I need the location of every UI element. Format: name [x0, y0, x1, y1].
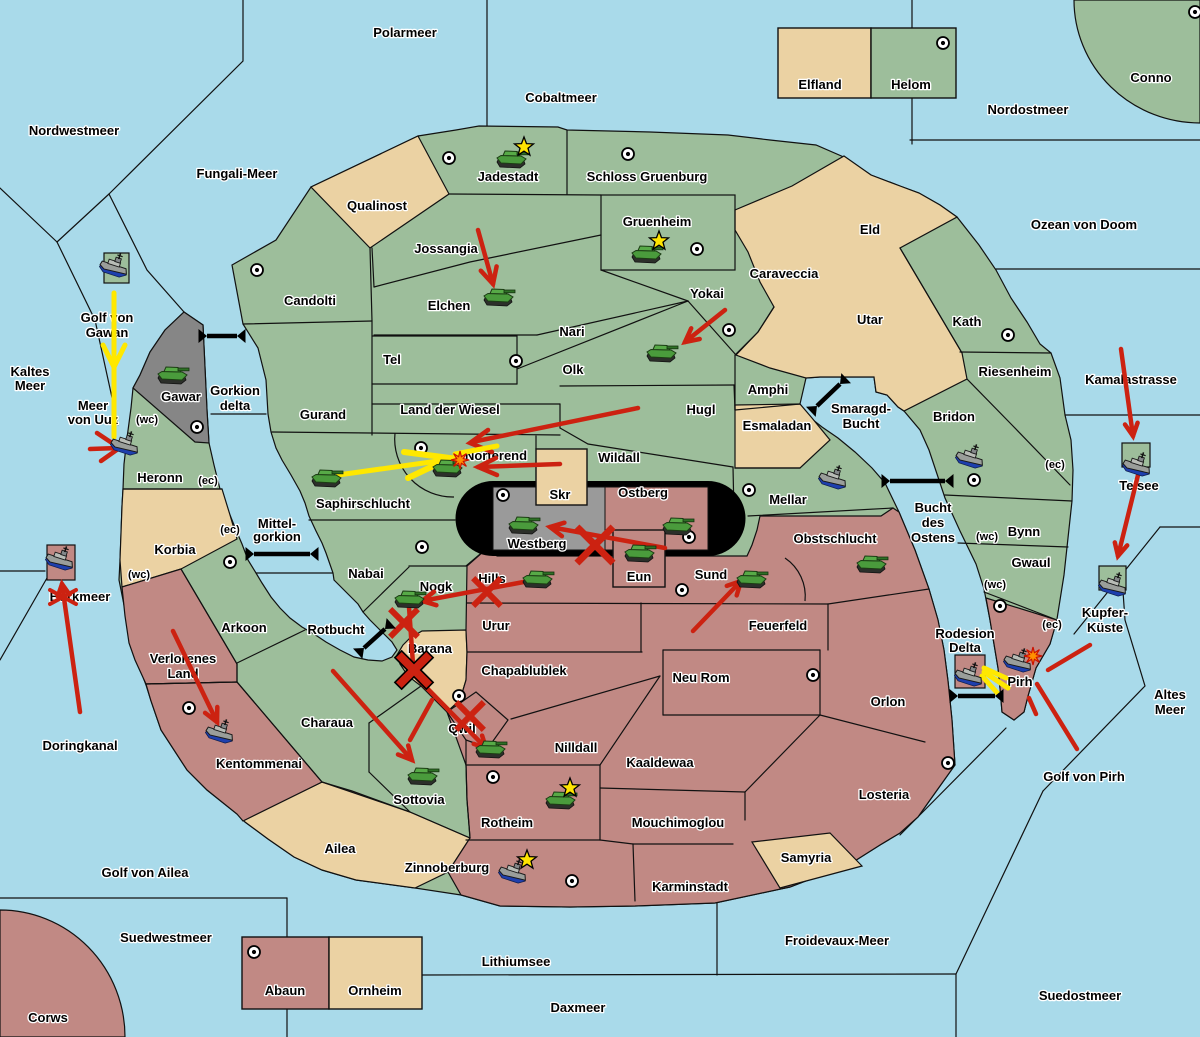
- svg-text:Skr: Skr: [550, 487, 571, 502]
- svg-text:Eld: Eld: [860, 222, 880, 237]
- svg-text:(ec): (ec): [198, 475, 218, 487]
- svg-text:Obstschlucht: Obstschlucht: [793, 531, 877, 546]
- svg-text:Kentommenai: Kentommenai: [216, 756, 302, 771]
- svg-text:Tel: Tel: [383, 352, 401, 367]
- svg-text:Jadestadt: Jadestadt: [478, 169, 539, 184]
- svg-text:(ec): (ec): [1045, 459, 1065, 471]
- svg-text:Altes: Altes: [1154, 687, 1186, 702]
- svg-text:Helom: Helom: [891, 77, 931, 92]
- svg-text:Lithiumsee: Lithiumsee: [482, 954, 551, 969]
- svg-text:Bucht: Bucht: [915, 500, 953, 515]
- svg-text:Rodesion: Rodesion: [935, 626, 994, 641]
- svg-text:Charaua: Charaua: [301, 715, 354, 730]
- svg-text:Meer: Meer: [15, 378, 45, 393]
- svg-text:Golf von: Golf von: [81, 310, 134, 325]
- svg-text:Eun: Eun: [627, 569, 652, 584]
- svg-text:Riesenheim: Riesenheim: [979, 364, 1052, 379]
- svg-text:Feuerfeld: Feuerfeld: [749, 618, 808, 633]
- svg-text:Wildall: Wildall: [598, 450, 640, 465]
- svg-text:Kupfer-: Kupfer-: [1082, 605, 1128, 620]
- svg-text:Gwaul: Gwaul: [1011, 555, 1050, 570]
- svg-text:Land der Wiesel: Land der Wiesel: [400, 402, 500, 417]
- svg-text:Ozean von Doom: Ozean von Doom: [1031, 217, 1137, 232]
- svg-text:Smaragd-: Smaragd-: [831, 401, 891, 416]
- svg-text:Bucht: Bucht: [843, 416, 881, 431]
- svg-text:Arkoon: Arkoon: [221, 620, 267, 635]
- svg-text:Bynn: Bynn: [1008, 524, 1041, 539]
- svg-text:Nabai: Nabai: [348, 566, 383, 581]
- svg-text:Qualinost: Qualinost: [347, 198, 408, 213]
- svg-text:Mellar: Mellar: [769, 492, 807, 507]
- svg-text:(wc): (wc): [136, 414, 158, 426]
- svg-text:Losteria: Losteria: [859, 787, 910, 802]
- svg-text:Fungali-Meer: Fungali-Meer: [197, 166, 278, 181]
- svg-text:von Uuz: von Uuz: [68, 412, 119, 427]
- svg-text:Golf von Pirh: Golf von Pirh: [1043, 769, 1125, 784]
- svg-text:Suedostmeer: Suedostmeer: [1039, 988, 1121, 1003]
- svg-text:Nordwestmeer: Nordwestmeer: [29, 123, 119, 138]
- svg-text:Gawan: Gawan: [86, 325, 129, 340]
- svg-text:Olk: Olk: [563, 362, 585, 377]
- svg-text:Neu Rom: Neu Rom: [672, 670, 729, 685]
- svg-text:Gawar: Gawar: [161, 389, 201, 404]
- svg-text:Saphirschlucht: Saphirschlucht: [316, 496, 411, 511]
- svg-text:Samyria: Samyria: [781, 850, 832, 865]
- svg-text:Nari: Nari: [559, 324, 584, 339]
- svg-text:Conno: Conno: [1130, 70, 1171, 85]
- svg-text:Golf von Ailea: Golf von Ailea: [102, 865, 190, 880]
- svg-text:Ostberg: Ostberg: [618, 485, 668, 500]
- svg-text:Yokai: Yokai: [690, 286, 724, 301]
- svg-text:Kaaldewaa: Kaaldewaa: [626, 755, 694, 770]
- svg-text:Cobaltmeer: Cobaltmeer: [525, 90, 597, 105]
- svg-text:Polarmeer: Polarmeer: [373, 25, 437, 40]
- svg-text:Esmaladan: Esmaladan: [743, 418, 812, 433]
- svg-text:Candolti: Candolti: [284, 293, 336, 308]
- svg-text:Kath: Kath: [953, 314, 982, 329]
- svg-text:Nordostmeer: Nordostmeer: [988, 102, 1069, 117]
- svg-text:Corws: Corws: [28, 1010, 68, 1025]
- svg-text:Heronn: Heronn: [137, 470, 183, 485]
- svg-text:Westberg: Westberg: [508, 536, 567, 551]
- svg-text:Bridon: Bridon: [933, 409, 975, 424]
- svg-text:Karminstadt: Karminstadt: [652, 879, 729, 894]
- svg-text:Elchen: Elchen: [428, 298, 471, 313]
- svg-text:(wc): (wc): [128, 569, 150, 581]
- svg-text:gorkion: gorkion: [253, 529, 301, 544]
- svg-text:Ailea: Ailea: [324, 841, 356, 856]
- svg-text:Gruenheim: Gruenheim: [623, 214, 692, 229]
- svg-text:Schloss Gruenburg: Schloss Gruenburg: [587, 169, 708, 184]
- svg-text:Rotheim: Rotheim: [481, 815, 533, 830]
- svg-text:Rotbucht: Rotbucht: [307, 622, 365, 637]
- svg-text:Ornheim: Ornheim: [348, 983, 401, 998]
- svg-text:Pirh: Pirh: [1007, 674, 1032, 689]
- svg-text:Urur: Urur: [482, 618, 509, 633]
- svg-text:Meer: Meer: [78, 398, 108, 413]
- svg-text:Kaltes: Kaltes: [10, 364, 49, 379]
- svg-text:Daxmeer: Daxmeer: [551, 1000, 606, 1015]
- svg-text:Mouchimoglou: Mouchimoglou: [632, 815, 724, 830]
- svg-text:Delta: Delta: [949, 640, 982, 655]
- svg-text:Sund: Sund: [695, 567, 728, 582]
- svg-text:des: des: [922, 515, 944, 530]
- svg-text:(ec): (ec): [1042, 619, 1062, 631]
- svg-text:Chapablublek: Chapablublek: [481, 663, 567, 678]
- svg-text:Suedwestmeer: Suedwestmeer: [120, 930, 212, 945]
- svg-text:Kamalastrasse: Kamalastrasse: [1085, 372, 1177, 387]
- svg-text:Jossangia: Jossangia: [414, 241, 478, 256]
- svg-text:(wc): (wc): [976, 531, 998, 543]
- svg-text:Korbia: Korbia: [154, 542, 196, 557]
- svg-text:Doringkanal: Doringkanal: [42, 738, 117, 753]
- svg-text:Ostens: Ostens: [911, 530, 955, 545]
- svg-text:Küste: Küste: [1087, 620, 1123, 635]
- svg-text:Froidevaux-Meer: Froidevaux-Meer: [785, 933, 889, 948]
- svg-text:Utar: Utar: [857, 312, 883, 327]
- svg-text:Nilldall: Nilldall: [555, 740, 598, 755]
- svg-text:Caraveccia: Caraveccia: [750, 266, 819, 281]
- svg-text:Hugl: Hugl: [687, 402, 716, 417]
- svg-text:Abaun: Abaun: [265, 983, 306, 998]
- svg-text:Gurand: Gurand: [300, 407, 346, 422]
- svg-text:Meer: Meer: [1155, 702, 1185, 717]
- svg-text:Gorkion: Gorkion: [210, 383, 260, 398]
- svg-text:(wc): (wc): [984, 579, 1006, 591]
- svg-text:delta: delta: [220, 398, 251, 413]
- svg-text:Elfland: Elfland: [798, 77, 841, 92]
- svg-text:(ec): (ec): [220, 524, 240, 536]
- svg-text:Barana: Barana: [408, 641, 453, 656]
- svg-text:Orlon: Orlon: [871, 694, 906, 709]
- svg-text:Zinnoberburg: Zinnoberburg: [405, 860, 490, 875]
- svg-text:Amphi: Amphi: [748, 382, 788, 397]
- svg-text:Sottovia: Sottovia: [393, 792, 445, 807]
